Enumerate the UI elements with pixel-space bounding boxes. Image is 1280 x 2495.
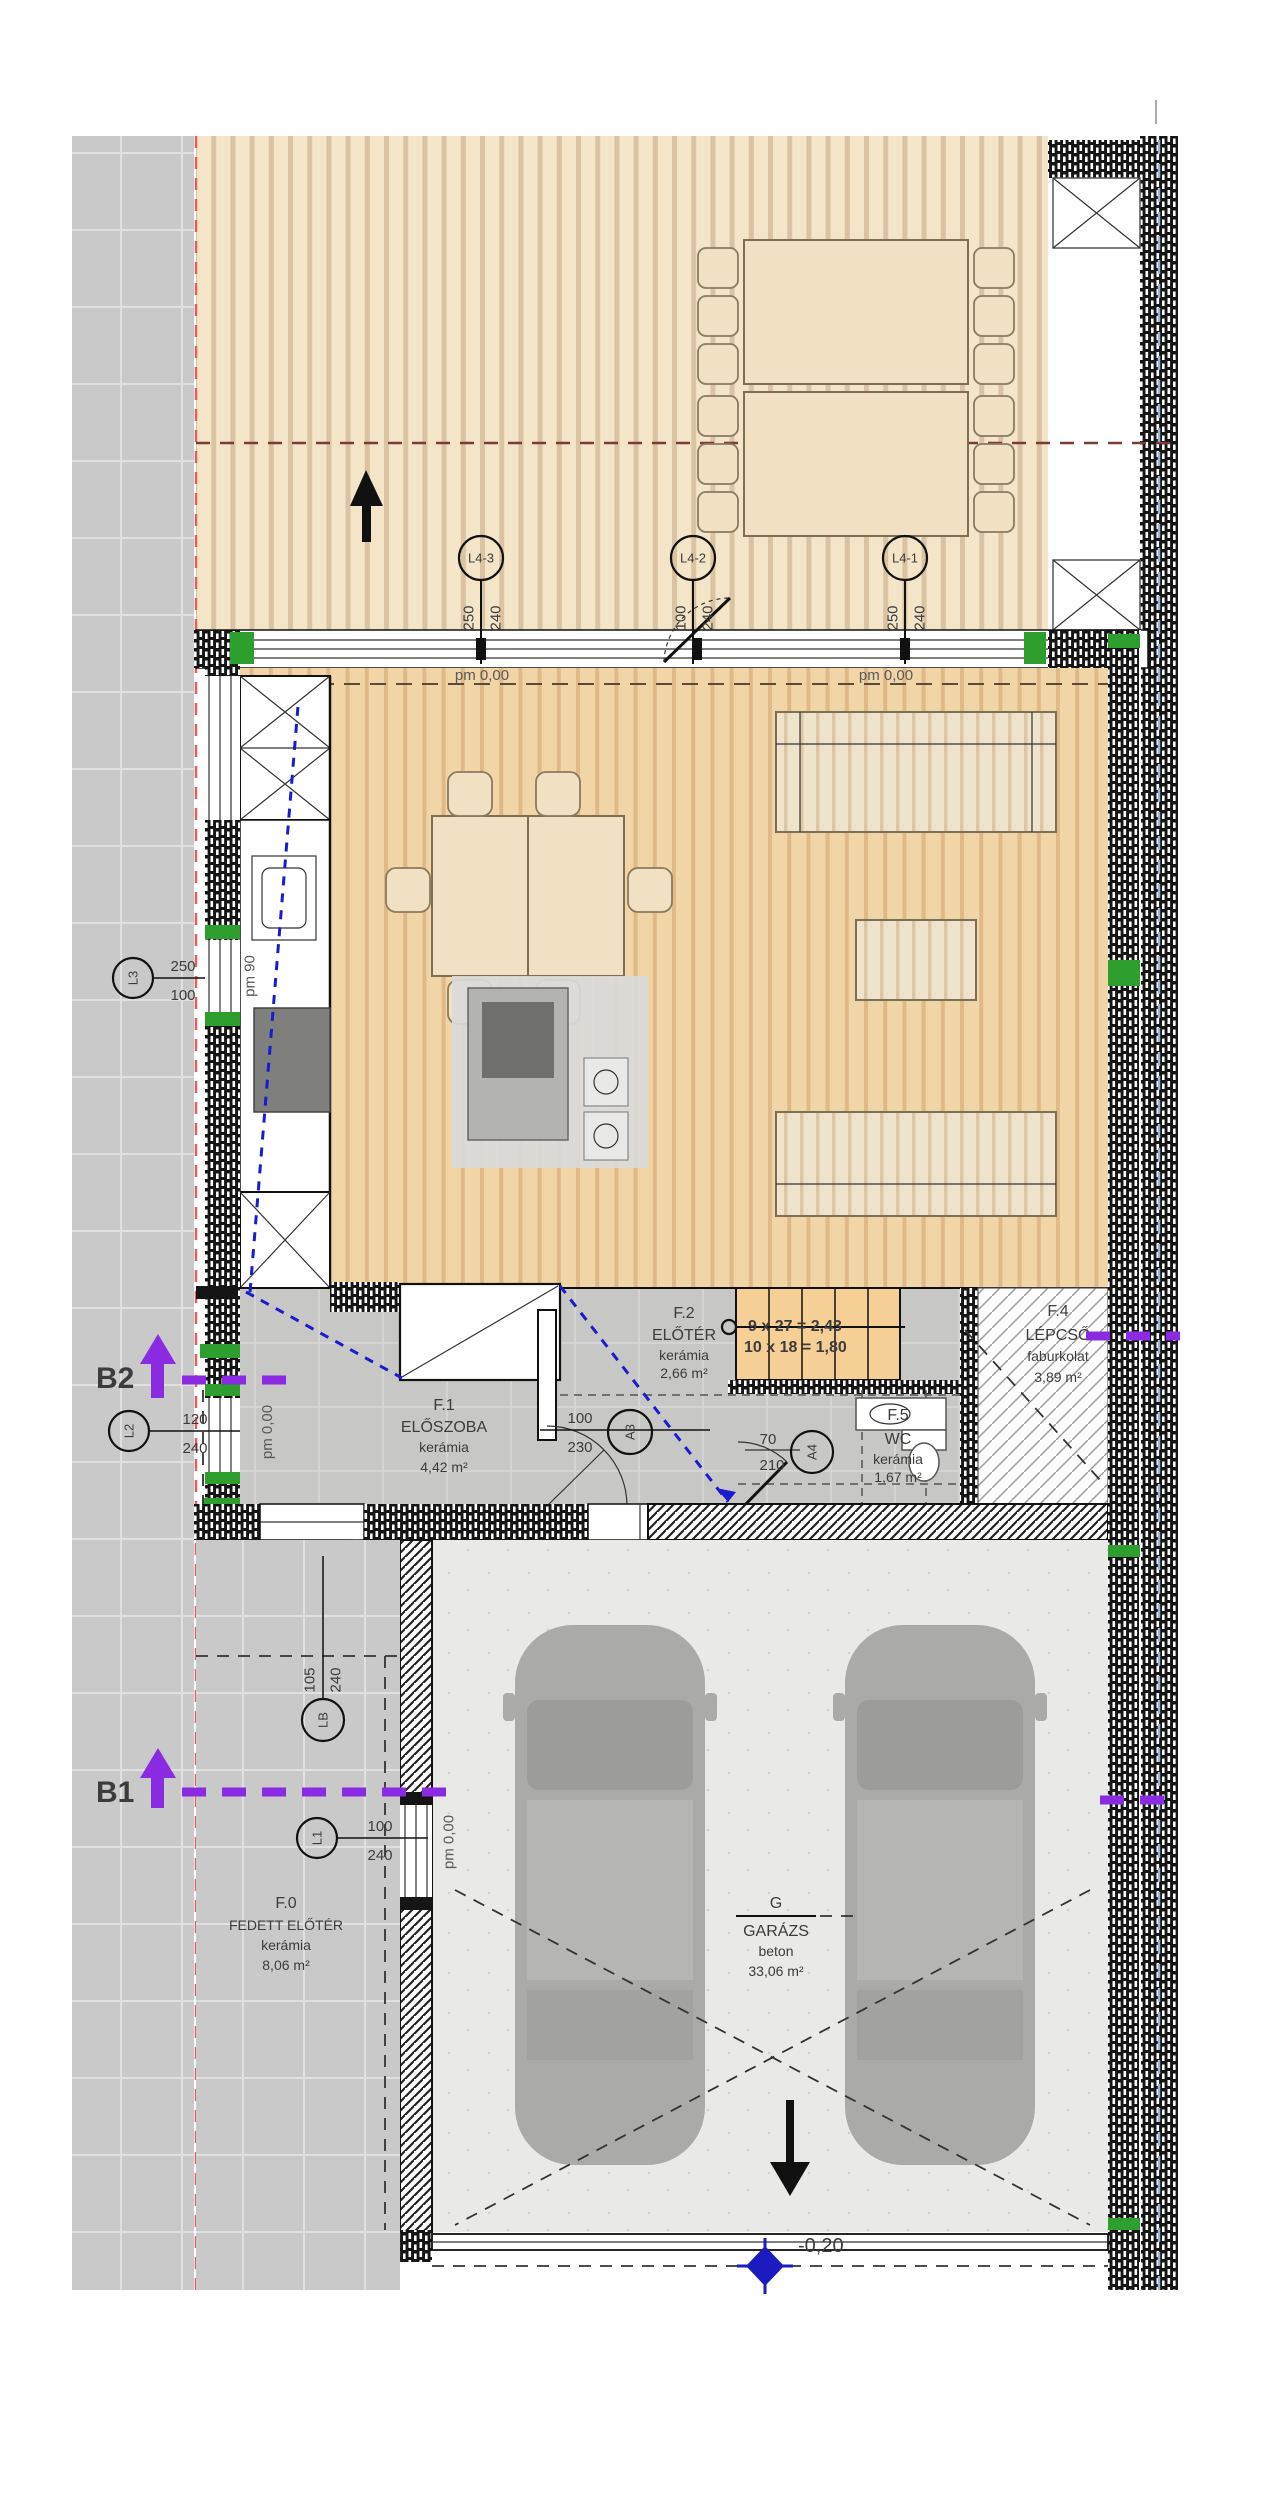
opening-width: 105	[302, 1667, 319, 1692]
level-value: -0,20	[798, 2235, 844, 2257]
car-mirror	[833, 1693, 845, 1721]
opening-height: 240	[912, 605, 929, 630]
stair-formula-2: 10 x 18 = 1,80	[744, 1339, 847, 1356]
wall-stub	[330, 1282, 400, 1312]
fireplace-core	[482, 1002, 554, 1078]
door-height: 230	[567, 1439, 592, 1456]
shaft-box-top	[1053, 178, 1140, 248]
room-area: 33,06 m²	[748, 1963, 804, 1979]
wardrobe	[400, 1284, 560, 1380]
house-right-wall	[1108, 630, 1140, 2290]
door-marker-label: A4	[805, 1444, 820, 1460]
green-cap	[1108, 1545, 1140, 1557]
terrace-table	[744, 392, 968, 536]
room-id: F.0	[275, 1895, 296, 1912]
opening-width: 250	[170, 958, 195, 975]
room-name: WC	[885, 1431, 912, 1448]
room-id: G	[770, 1895, 782, 1912]
room-name: GARÁZS	[743, 1921, 809, 1940]
green-cap	[1024, 632, 1046, 664]
floor-plan-canvas: pm 0,00 pm 0,00	[0, 0, 1280, 2495]
room-id: F.2	[673, 1305, 694, 1322]
level-label: pm 0,00	[859, 667, 913, 684]
opening-marker-label: L2	[122, 1424, 137, 1438]
opening-marker-label: L4-3	[468, 551, 494, 566]
green-cap	[1108, 634, 1140, 648]
level-label: pm 0,00	[455, 667, 509, 684]
section-label: B1	[96, 1776, 134, 1809]
terrace-table	[744, 240, 968, 384]
opening-height: 240	[488, 605, 505, 630]
sofa	[776, 712, 1056, 832]
porch-paving	[196, 1540, 400, 2290]
wall-stub	[400, 2230, 432, 2262]
living-room: pm 0,00 pm 0,00	[240, 667, 1108, 1288]
window-kitchen	[205, 940, 240, 1012]
opening-height: 100	[170, 987, 195, 1004]
car-mirror	[503, 1693, 515, 1721]
garage-side-window	[400, 1792, 432, 1910]
stair-wall	[960, 1288, 978, 1506]
sofa	[776, 1112, 1056, 1216]
opening-marker-label: L4-2	[680, 551, 706, 566]
green-cap	[205, 1012, 240, 1026]
room-finish: kerámia	[873, 1451, 923, 1467]
opening-height: 240	[700, 605, 717, 630]
room-area: 4,42 m²	[420, 1459, 468, 1475]
opening-marker-label: L3	[126, 971, 141, 985]
wall-stub	[1108, 2230, 1140, 2262]
stair-void: F.4 LÉPCSŐ faburkolat 3,89 m²	[960, 1288, 1108, 1506]
dining-table	[432, 816, 528, 976]
stair-formula-1: 9 x 27 = 2,43	[748, 1318, 842, 1335]
chair	[386, 868, 430, 912]
car-mirror	[705, 1693, 717, 1721]
side-table	[584, 1058, 628, 1106]
green-cap	[1108, 2218, 1140, 2230]
green-cap	[205, 1472, 240, 1484]
level-label: pm 0,00	[441, 1815, 458, 1869]
wall-stub	[196, 1286, 238, 1299]
room-finish: kerámia	[261, 1937, 311, 1953]
room-name: FEDETT ELŐTÉR	[229, 1917, 343, 1933]
chair	[628, 868, 672, 912]
opening-marker-label: LB	[316, 1712, 331, 1728]
room-area: 1,67 m²	[874, 1469, 922, 1485]
room-finish: kerámia	[659, 1347, 709, 1363]
door-marker-label: A3	[623, 1424, 638, 1440]
fireplace-area	[452, 976, 648, 1168]
hall-zone: 9 x 27 = 2,43 10 x 18 = 1,80 F.4 LÉPCSŐ …	[240, 1282, 1108, 1540]
window-entry	[205, 1398, 240, 1472]
room-area: 3,89 m²	[1034, 1369, 1082, 1385]
car-left	[503, 1625, 717, 2165]
room-name: ELŐSZOBA	[401, 1417, 488, 1436]
room-id: F.5	[887, 1407, 908, 1424]
covered-porch: F.0 FEDETT ELŐTÉR kerámia 8,06 m² 105 24…	[196, 1540, 400, 2290]
dining-table	[528, 816, 624, 976]
green-cap	[205, 925, 240, 939]
room-area: 8,06 m²	[262, 1957, 310, 1973]
room-finish: beton	[758, 1943, 793, 1959]
section-label: B2	[96, 1362, 134, 1395]
room-finish: kerámia	[419, 1439, 469, 1455]
level-label: pm 90	[242, 955, 259, 997]
room-id: F.1	[433, 1397, 454, 1414]
door-height: 210	[759, 1457, 784, 1474]
opening-width: 250	[885, 605, 902, 630]
room-area: 2,66 m²	[660, 1365, 708, 1381]
opening-width: 100	[367, 1818, 392, 1835]
opening-width: 100	[673, 605, 690, 630]
door-width: 100	[567, 1410, 592, 1427]
chair	[536, 772, 580, 816]
wall-under-stair	[728, 1380, 965, 1394]
opening-marker-label: L4-1	[892, 551, 918, 566]
sidewalk-paving	[72, 136, 194, 2290]
chair	[448, 772, 492, 816]
room-id: F.4	[1047, 1303, 1068, 1320]
stair-walkline-start	[722, 1320, 736, 1334]
room-name: LÉPCSŐ	[1026, 1325, 1091, 1344]
opening-width: 120	[182, 1411, 207, 1428]
green-cap	[230, 632, 254, 664]
garage-front: -0,20	[400, 2230, 1140, 2294]
green-cap	[1108, 960, 1140, 986]
ottoman	[856, 920, 976, 1000]
opening-width: 250	[461, 605, 478, 630]
room-finish: faburkolat	[1027, 1348, 1089, 1364]
side-table	[584, 1112, 628, 1160]
opening-height: 240	[367, 1847, 392, 1864]
cooktop	[254, 1008, 330, 1112]
opening-height: 240	[182, 1440, 207, 1457]
opening-marker-label: L1	[310, 1831, 325, 1845]
green-cap	[205, 1384, 240, 1396]
door-width: 70	[760, 1431, 777, 1448]
opening-height: 240	[328, 1667, 345, 1692]
level-label: pm 0,00	[259, 1405, 276, 1459]
car-mirror	[1035, 1693, 1047, 1721]
car-right	[833, 1625, 1047, 2165]
room-name: ELŐTÉR	[652, 1325, 716, 1344]
shaft-box-bottom	[1053, 560, 1140, 630]
window-upper-left	[205, 676, 240, 820]
